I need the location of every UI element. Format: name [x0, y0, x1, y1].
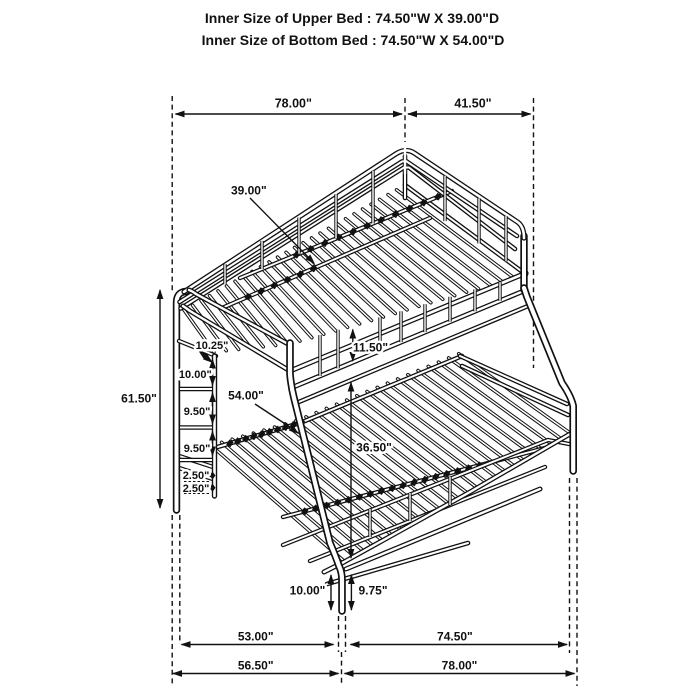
- svg-text:41.50": 41.50": [454, 97, 491, 111]
- svg-text:9.50": 9.50": [184, 443, 211, 455]
- svg-text:10.25": 10.25": [196, 340, 229, 352]
- svg-text:10.00": 10.00": [290, 583, 326, 597]
- svg-text:53.00": 53.00": [238, 629, 274, 643]
- svg-text:54.00": 54.00": [228, 388, 264, 402]
- svg-text:39.00": 39.00": [231, 183, 267, 197]
- svg-text:78.00": 78.00": [275, 97, 312, 111]
- svg-text:2.50": 2.50": [183, 470, 210, 482]
- svg-text:36.50": 36.50": [356, 440, 392, 454]
- svg-text:2.50": 2.50": [183, 483, 210, 495]
- svg-text:9.75": 9.75": [358, 583, 387, 597]
- svg-text:9.50": 9.50": [184, 406, 211, 418]
- svg-text:56.50": 56.50": [238, 658, 274, 672]
- svg-text:10.00": 10.00": [179, 369, 212, 381]
- svg-text:78.00": 78.00": [442, 658, 478, 672]
- svg-text:74.50": 74.50": [437, 629, 473, 643]
- svg-text:Inner Size of Upper Bed : 74.5: Inner Size of Upper Bed : 74.50"W X 39.0…: [205, 10, 499, 26]
- svg-text:Inner Size of Bottom Bed : 74.: Inner Size of Bottom Bed : 74.50"W X 54.…: [202, 32, 505, 48]
- svg-text:11.50": 11.50": [353, 340, 388, 354]
- svg-text:61.50": 61.50": [121, 391, 157, 405]
